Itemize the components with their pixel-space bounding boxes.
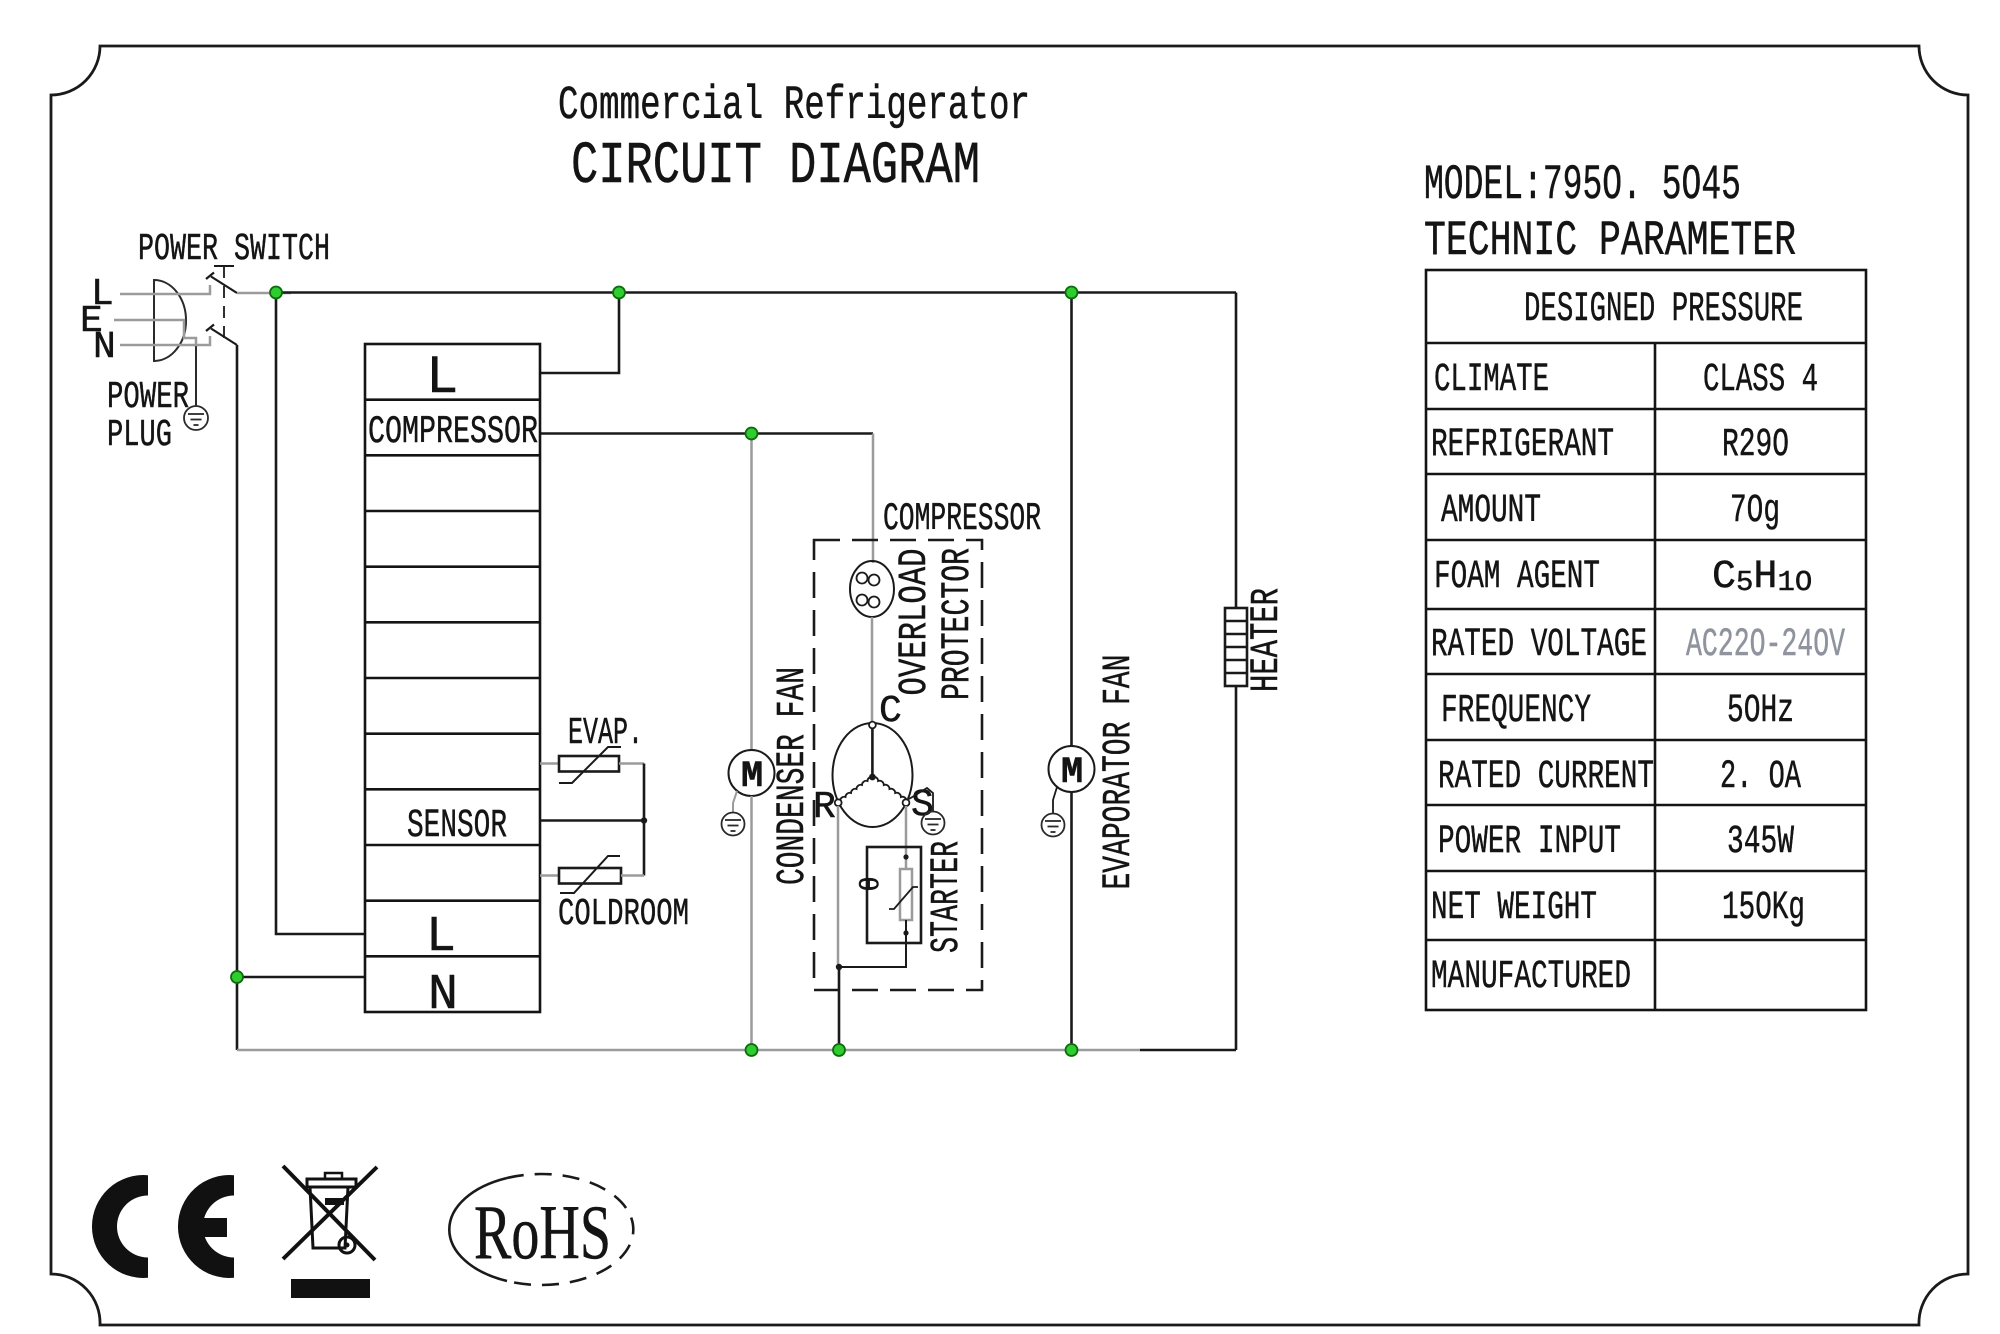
svg-text:L: L [426,909,456,966]
svg-text:POWER SWITCH: POWER SWITCH [138,228,330,271]
svg-text:COMPRESSOR: COMPRESSOR [368,410,538,454]
svg-text:CONDENSER FAN: CONDENSER FAN [771,667,816,885]
svg-text:FREQUENCY: FREQUENCY [1441,689,1591,734]
svg-text:COMPRESSOR: COMPRESSOR [883,497,1041,541]
svg-text:SENSOR: SENSOR [407,804,507,849]
svg-text:STARTER: STARTER [925,841,970,953]
svg-text:RoHS: RoHS [474,1189,611,1275]
svg-text:POWER: POWER [107,376,189,419]
svg-text:RATED VOLTAGE: RATED VOLTAGE [1431,623,1647,668]
svg-text:CLIMATE: CLIMATE [1434,358,1549,403]
svg-text:OVERLOAD: OVERLOAD [893,549,938,696]
svg-text:15OKg: 15OKg [1722,886,1805,931]
svg-text:Commercial Refrigerator: Commercial Refrigerator [558,80,1030,133]
svg-text:CIRCUIT DIAGRAM: CIRCUIT DIAGRAM [571,133,980,200]
svg-text:2. OA: 2. OA [1720,755,1801,800]
svg-text:5OHz: 5OHz [1727,689,1794,734]
svg-text:R29O: R29O [1722,423,1789,468]
svg-text:AC22O-24OV: AC22O-24OV [1686,623,1845,668]
svg-text:M: M [741,756,763,798]
svg-text:PROTECTOR: PROTECTOR [936,548,981,700]
svg-text:C: C [879,690,902,733]
svg-text:EVAPORATOR FAN: EVAPORATOR FAN [1097,655,1142,890]
svg-text:HEATER: HEATER [1245,588,1290,692]
svg-text:AMOUNT: AMOUNT [1441,489,1541,534]
svg-text:C5H1O: C5H1O [1712,555,1812,600]
svg-text:345W: 345W [1727,820,1794,865]
svg-text:NET WEIGHT: NET WEIGHT [1431,886,1597,931]
svg-text:RATED CURRENT: RATED CURRENT [1438,755,1654,800]
svg-text:L: L [426,348,458,409]
svg-text:REFRIGERANT: REFRIGERANT [1431,423,1614,468]
svg-text:N: N [93,326,116,369]
svg-text:POWER INPUT: POWER INPUT [1438,820,1621,865]
svg-text:7Og: 7Og [1730,489,1780,534]
svg-text:DESIGNED PRESSURE: DESIGNED PRESSURE [1524,285,1803,333]
svg-text:N: N [428,967,458,1024]
svg-text:TECHNIC PARAMETER: TECHNIC PARAMETER [1424,213,1796,269]
svg-text:θ: θ [856,876,886,892]
svg-text:FOAM AGENT: FOAM AGENT [1434,555,1600,600]
svg-text:M: M [1061,752,1083,794]
svg-text:R: R [813,786,836,829]
svg-text:MODEL:795O. 5O45: MODEL:795O. 5O45 [1424,157,1741,213]
svg-text:PLUG: PLUG [107,414,172,457]
svg-text:COLDROOM: COLDROOM [558,893,689,936]
svg-text:MANUFACTURED: MANUFACTURED [1431,955,1631,1000]
svg-text:CLASS 4: CLASS 4 [1703,358,1818,403]
